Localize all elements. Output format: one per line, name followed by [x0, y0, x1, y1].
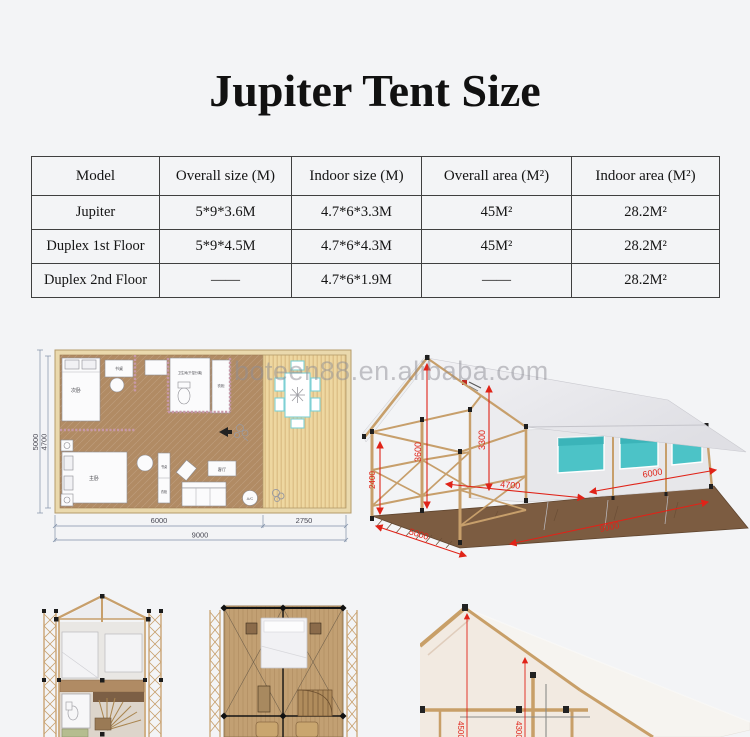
table-row-jupiter: Jupiter 5*9*3.6M 4.7*6*3.3M 45M² 28.2M² [32, 196, 720, 230]
cell-indoor-size: 4.7*6*4.3M [292, 230, 422, 264]
dim-label-indoor-height: 3300 [477, 430, 487, 450]
section-view-cross-section: 4500 4300 [420, 598, 750, 737]
label-wardrobe2: 衣柜 [161, 489, 168, 494]
dim-label-plan-total-length: 9000 [192, 531, 209, 540]
cell-indoor-size: 4.7*6*1.9M [292, 264, 422, 298]
label-master: 主卧 [89, 475, 99, 482]
cell-indoor-area: 28.2M² [572, 230, 720, 264]
table-row-duplex-1st: Duplex 1st Floor 5*9*4.5M 4.7*6*4.3M 45M… [32, 230, 720, 264]
col-header-overall-area: Overall area (M²) [422, 157, 572, 196]
page-title: Jupiter Tent Size [0, 64, 750, 117]
label-bathroom: 卫生间(干湿分离) [178, 370, 202, 375]
cell-overall-area: —— [422, 264, 572, 298]
section-view-duplex-cutaway [35, 592, 170, 737]
label-desk1: 书桌 [115, 365, 123, 371]
tent-size-table-wrap: Model Overall size (M) Indoor size (M) O… [31, 156, 719, 298]
section-view-loft-top [206, 596, 361, 737]
cell-indoor-area: 28.2M² [572, 264, 720, 298]
floor-plan-image: 5000 4700 6000 2750 9000 [32, 330, 362, 560]
cell-indoor-size: 4.7*6*3.3M [292, 196, 422, 230]
table-header-row: Model Overall size (M) Indoor size (M) O… [32, 157, 720, 196]
cell-overall-size: —— [160, 264, 292, 298]
label-desk2: 书桌 [161, 464, 168, 469]
dim-label-plan-width-inner: 4700 [40, 434, 49, 451]
label-ac: A/C [247, 496, 254, 501]
cell-model: Duplex 2nd Floor [32, 264, 160, 298]
col-header-model: Model [32, 157, 160, 196]
cell-overall-size: 5*9*3.6M [160, 196, 292, 230]
label-living: 客厅 [218, 466, 226, 473]
cell-overall-area: 45M² [422, 230, 572, 264]
dim-label-plan-interior-length: 6000 [151, 516, 168, 525]
dim-label-porch-height: 2400 [368, 471, 377, 489]
table-centerpiece-icon [290, 387, 305, 403]
stairs-top-view [298, 690, 332, 716]
label-bedroom2: 次卧 [71, 387, 81, 394]
cell-model: Duplex 1st Floor [32, 230, 160, 264]
tent-size-table: Model Overall size (M) Indoor size (M) O… [31, 156, 720, 298]
dim-label-overall-height: 4500 [456, 721, 465, 737]
dim-label-plan-deck-length: 2750 [296, 516, 313, 525]
cell-model: Jupiter [32, 196, 160, 230]
cell-overall-size: 5*9*4.5M [160, 230, 292, 264]
col-header-indoor-size: Indoor size (M) [292, 157, 422, 196]
cell-overall-area: 45M² [422, 196, 572, 230]
dim-label-porch-width: 4700 [500, 479, 521, 491]
product-spec-page: Jupiter Tent Size Model Overall size (M)… [0, 0, 750, 737]
col-header-overall-size: Overall size (M) [160, 157, 292, 196]
col-header-indoor-area: Indoor area (M²) [572, 157, 720, 196]
tent-render-image: 3600 3300 2400 4700 6000 9000 5000 [358, 330, 750, 572]
table-row-duplex-2nd: Duplex 2nd Floor —— 4.7*6*1.9M —— 28.2M² [32, 264, 720, 298]
dim-label-section-indoor-height: 4300 [514, 721, 523, 737]
cell-indoor-area: 28.2M² [572, 196, 720, 230]
label-wardrobe1: 衣柜 [217, 383, 225, 388]
dim-label-ridge-height: 3600 [413, 442, 423, 462]
